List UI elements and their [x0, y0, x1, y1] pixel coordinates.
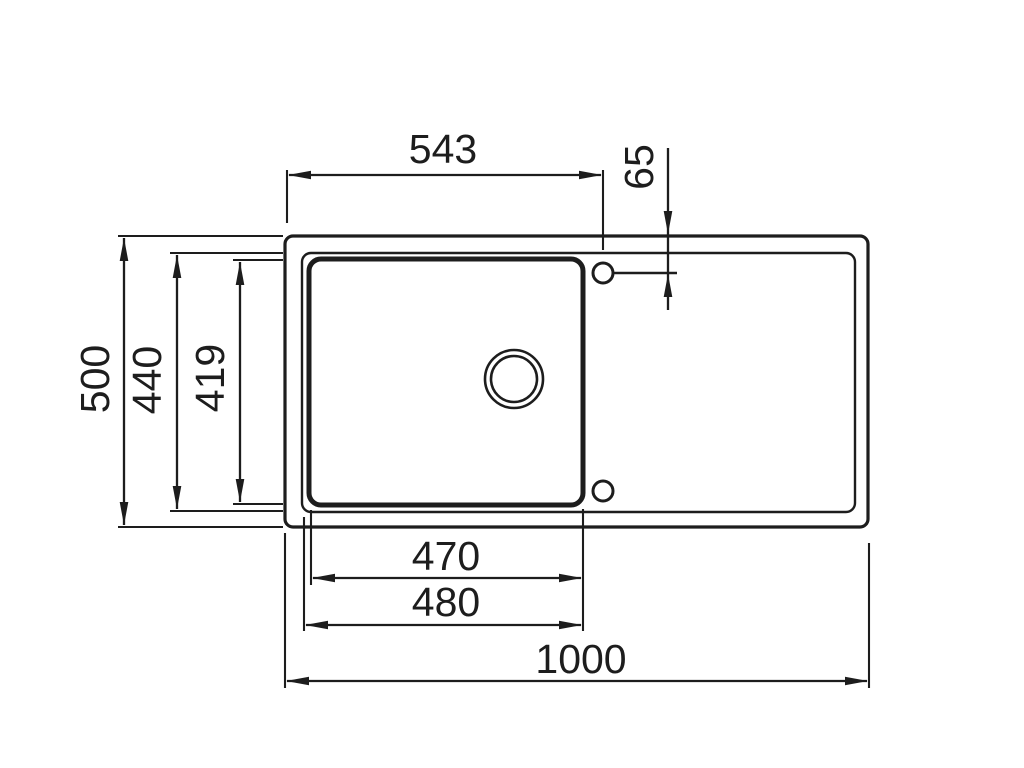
dim-faucet-offset-label: 65 [616, 144, 662, 190]
dim-bowl-depth-label: 419 [187, 344, 233, 412]
arrow-left [286, 677, 309, 686]
technical-drawing-canvas: 543 65 500 440 [0, 0, 1024, 768]
dim-overall-width: 1000 [285, 533, 869, 688]
sink-dimension-drawing: 543 65 500 440 [0, 0, 1024, 768]
arrow-up [173, 255, 182, 278]
arrow-down [236, 479, 245, 502]
arrow-left [288, 171, 311, 180]
sink-body [285, 236, 868, 527]
sink-inner-rim [302, 253, 855, 512]
arrow-up [120, 238, 129, 261]
dim-faucet-offset: 65 [616, 144, 672, 310]
faucet-hole-bottom [593, 481, 613, 501]
arrow-up [236, 262, 245, 285]
arrow-up [664, 274, 673, 297]
arrow-right [579, 171, 602, 180]
faucet-hole-top [593, 263, 613, 283]
drain-hole-inner [491, 356, 537, 402]
drain-hole-outer [485, 350, 543, 408]
dim-top-width: 543 [287, 126, 603, 250]
arrow-left [305, 621, 328, 630]
dim-bowl-depth: 419 [187, 260, 283, 504]
dim-overall-depth-label: 500 [72, 345, 118, 413]
arrow-right [559, 621, 582, 630]
dim-top-width-label: 543 [409, 126, 477, 172]
dim-bowl-outer-width-label: 480 [412, 579, 480, 625]
sink-outer-edge [285, 236, 868, 527]
arrow-right [845, 677, 868, 686]
dim-overall-width-label: 1000 [535, 636, 626, 682]
dim-rim-depth-label: 440 [124, 346, 170, 414]
arrow-down [120, 502, 129, 525]
arrow-down [173, 486, 182, 509]
arrow-right [559, 574, 582, 583]
dim-bowl-inner-width-label: 470 [412, 533, 480, 579]
arrow-down [664, 211, 673, 234]
arrow-left [312, 574, 335, 583]
